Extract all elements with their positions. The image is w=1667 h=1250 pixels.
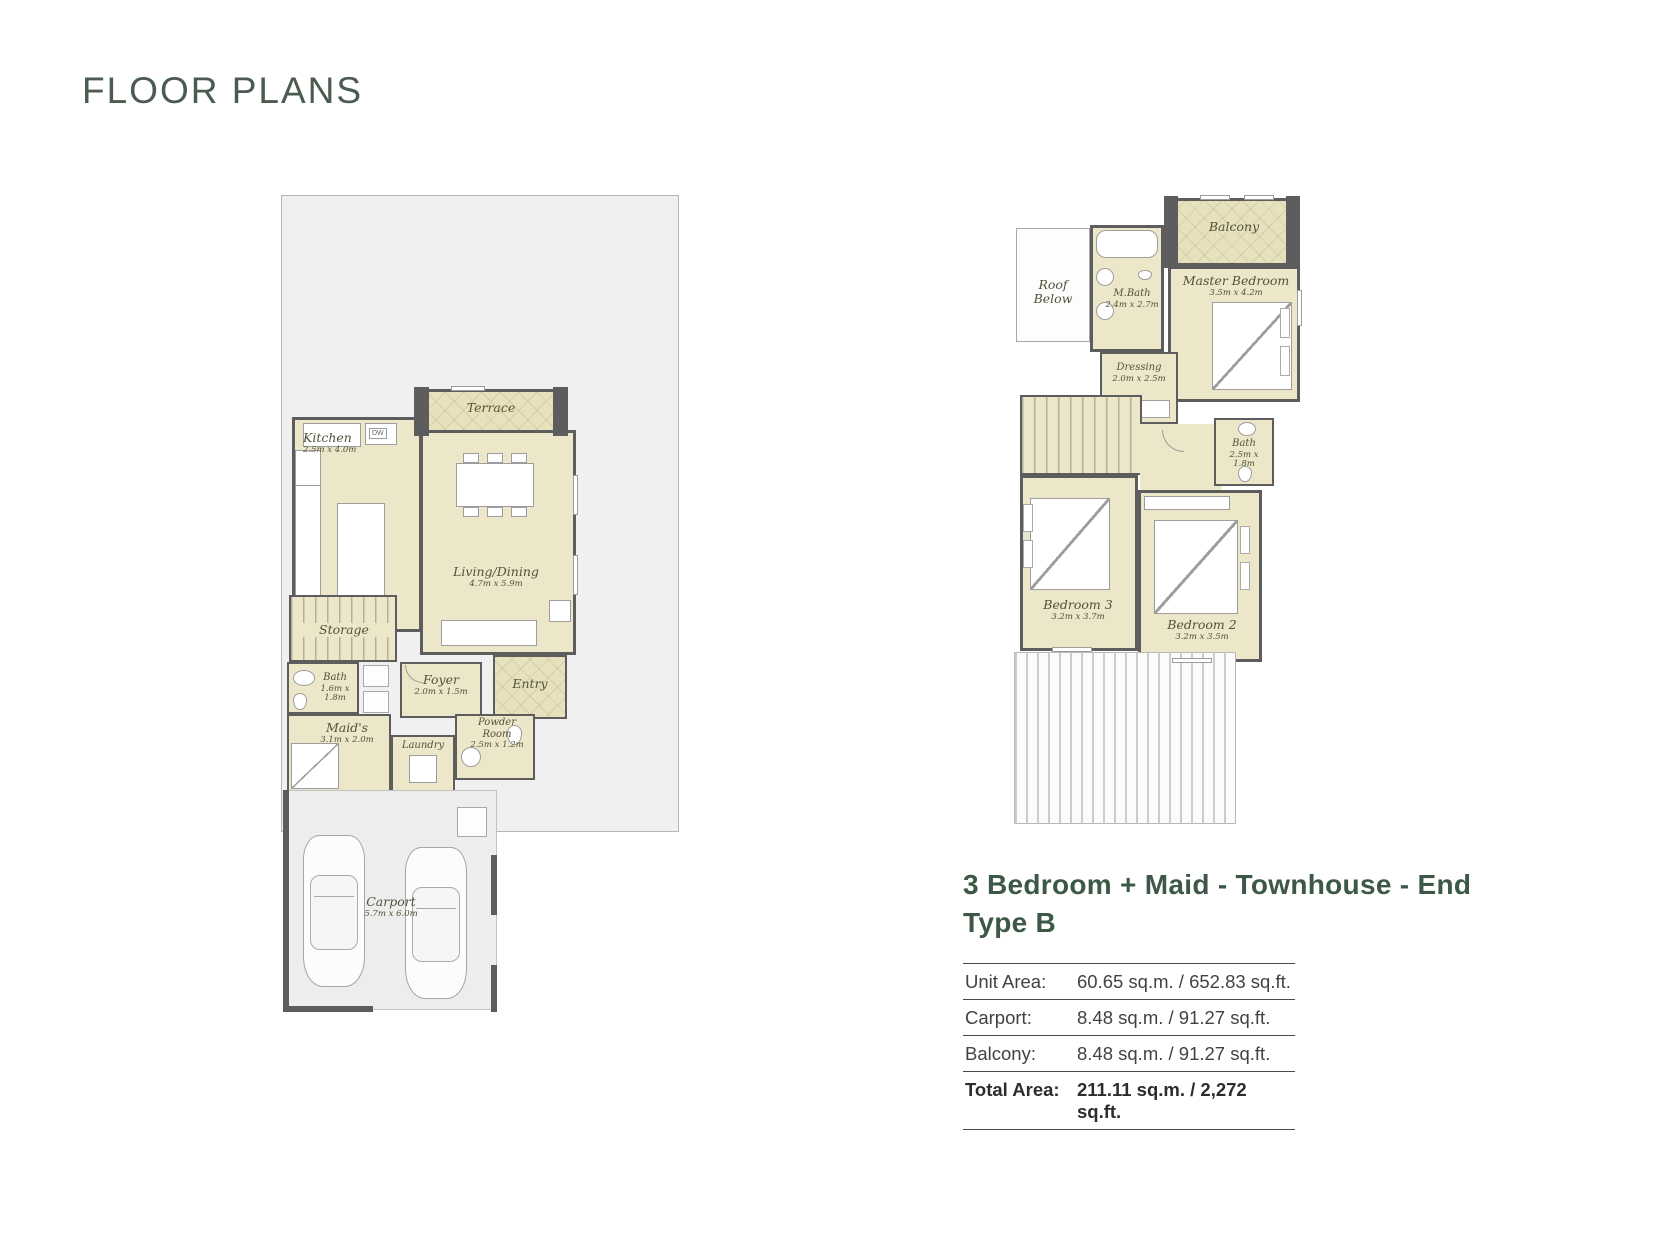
room-label-balcony: Balcony — [1192, 220, 1276, 234]
washbasin — [1238, 422, 1256, 436]
area-row-label: Balcony: — [965, 1043, 1077, 1065]
bedroom3-window — [1052, 647, 1092, 652]
bedroom3-bed — [1030, 498, 1110, 590]
table-row: Balcony: 8.48 sq.m. / 91.27 sq.ft. — [963, 1035, 1295, 1071]
car — [405, 847, 467, 999]
dining-chair — [463, 507, 479, 517]
room-label-roof-below: Roof Below — [1020, 278, 1086, 307]
living-window — [573, 555, 578, 595]
room-label-bedroom-2: Bedroom 2 3.2m x 3.5m — [1154, 618, 1250, 643]
utility-box — [457, 807, 487, 837]
area-row-value: 8.48 sq.m. / 91.27 sq.ft. — [1077, 1007, 1293, 1029]
unit-heading-line2: Type B — [963, 904, 1473, 942]
sofa — [441, 620, 537, 646]
table-row: Carport: 8.48 sq.m. / 91.27 sq.ft. — [963, 999, 1295, 1035]
pillow — [1240, 562, 1250, 590]
pillow — [1240, 526, 1250, 554]
pergola-hatch — [1014, 652, 1236, 824]
pillow — [1023, 540, 1033, 568]
room-label-entry: Entry — [499, 677, 561, 691]
side-table — [549, 600, 571, 622]
area-row-label: Total Area: — [965, 1079, 1077, 1101]
area-row-label: Carport: — [965, 1007, 1077, 1029]
maids-bed — [291, 743, 339, 789]
wall-segment — [414, 387, 429, 436]
room-label-terrace: Terrace — [441, 401, 541, 415]
table-row: Unit Area: 60.65 sq.m. / 652.83 sq.ft. — [963, 963, 1295, 999]
pillow — [1280, 308, 1290, 338]
dining-chair — [511, 507, 527, 517]
master-window — [1297, 290, 1302, 326]
wall-segment — [1164, 196, 1178, 268]
page-title: FLOOR PLANS — [82, 70, 363, 112]
closet — [363, 665, 389, 687]
wall-segment — [553, 387, 568, 436]
unit-heading-line1: 3 Bedroom + Maid - Townhouse - End — [963, 866, 1473, 904]
room-label-maids: Maid's 3.1m x 2.0m — [309, 721, 385, 746]
room-label-bath-ff: Bath 2.5m x 1.8m — [1218, 438, 1270, 470]
area-table: Unit Area: 60.65 sq.m. / 652.83 sq.ft. C… — [963, 963, 1295, 1130]
area-row-label: Unit Area: — [965, 971, 1077, 993]
area-row-value: 8.48 sq.m. / 91.27 sq.ft. — [1077, 1043, 1293, 1065]
bathtub — [1096, 230, 1158, 258]
room-label-master-bedroom: Master Bedroom 3.5m x 4.2m — [1176, 274, 1296, 299]
bedroom2-bed — [1154, 520, 1238, 614]
area-row-value: 211.11 sq.m. / 2,272 sq.ft. — [1077, 1079, 1293, 1123]
wall-segment — [491, 855, 497, 915]
room-label-bath-gf: Bath 1.6m x 1.8m — [311, 672, 359, 704]
closet — [363, 691, 389, 713]
balcony-window — [1200, 195, 1230, 200]
room-label-bedroom-3: Bedroom 3 3.2m x 3.7m — [1030, 598, 1126, 623]
dining-chair — [511, 453, 527, 463]
washing-machine — [409, 755, 437, 783]
room-label-living-dining: Living/Dining 4.7m x 5.9m — [436, 565, 556, 590]
room-label-mbath: M.Bath 2.4m x 2.7m — [1104, 288, 1160, 310]
table-row-total: Total Area: 211.11 sq.m. / 2,272 sq.ft. — [963, 1071, 1295, 1130]
wall-segment — [283, 790, 289, 1012]
stairs — [1020, 395, 1142, 475]
wardrobe — [1144, 496, 1230, 510]
living-window — [573, 475, 578, 515]
pillow — [1023, 504, 1033, 532]
room-label-carport: Carport 5.7m x 6.0m — [343, 895, 439, 920]
room-label-storage: Storage — [299, 623, 389, 637]
balcony-window — [1244, 195, 1274, 200]
unit-heading: 3 Bedroom + Maid - Townhouse - End Type … — [963, 866, 1473, 942]
area-row-value: 60.65 sq.m. / 652.83 sq.ft. — [1077, 971, 1293, 993]
room-label-foyer: Foyer 2.0m x 1.5m — [409, 673, 473, 698]
dining-chair — [487, 507, 503, 517]
dining-table — [456, 463, 534, 507]
floor-plans-page: FLOOR PLANS Terrace DW Kitchen 2.5m x 4.… — [0, 0, 1667, 1250]
room-label-dressing: Dressing 2.0m x 2.5m — [1106, 362, 1172, 384]
washbasin — [1096, 268, 1114, 286]
room-label-laundry: Laundry — [395, 740, 451, 752]
terrace-window — [451, 386, 485, 391]
wall-segment — [491, 965, 497, 1012]
wall-segment — [1286, 196, 1300, 268]
dining-chair — [487, 453, 503, 463]
dining-chair — [463, 453, 479, 463]
wall-segment — [283, 1006, 373, 1012]
room-label-powder: Powder Room 2.5m x 1.2m — [465, 717, 529, 751]
pillow — [1280, 346, 1290, 376]
first-floor-plan: Roof Below M.Bath 2.4m x 2.7m Balcony Ma… — [1012, 190, 1312, 830]
ground-floor-plan: Terrace DW Kitchen 2.5m x 4.0m Living/Di… — [281, 195, 681, 1015]
bedroom2-window — [1172, 658, 1212, 663]
room-label-kitchen: Kitchen 2.5m x 4.0m — [303, 431, 393, 456]
